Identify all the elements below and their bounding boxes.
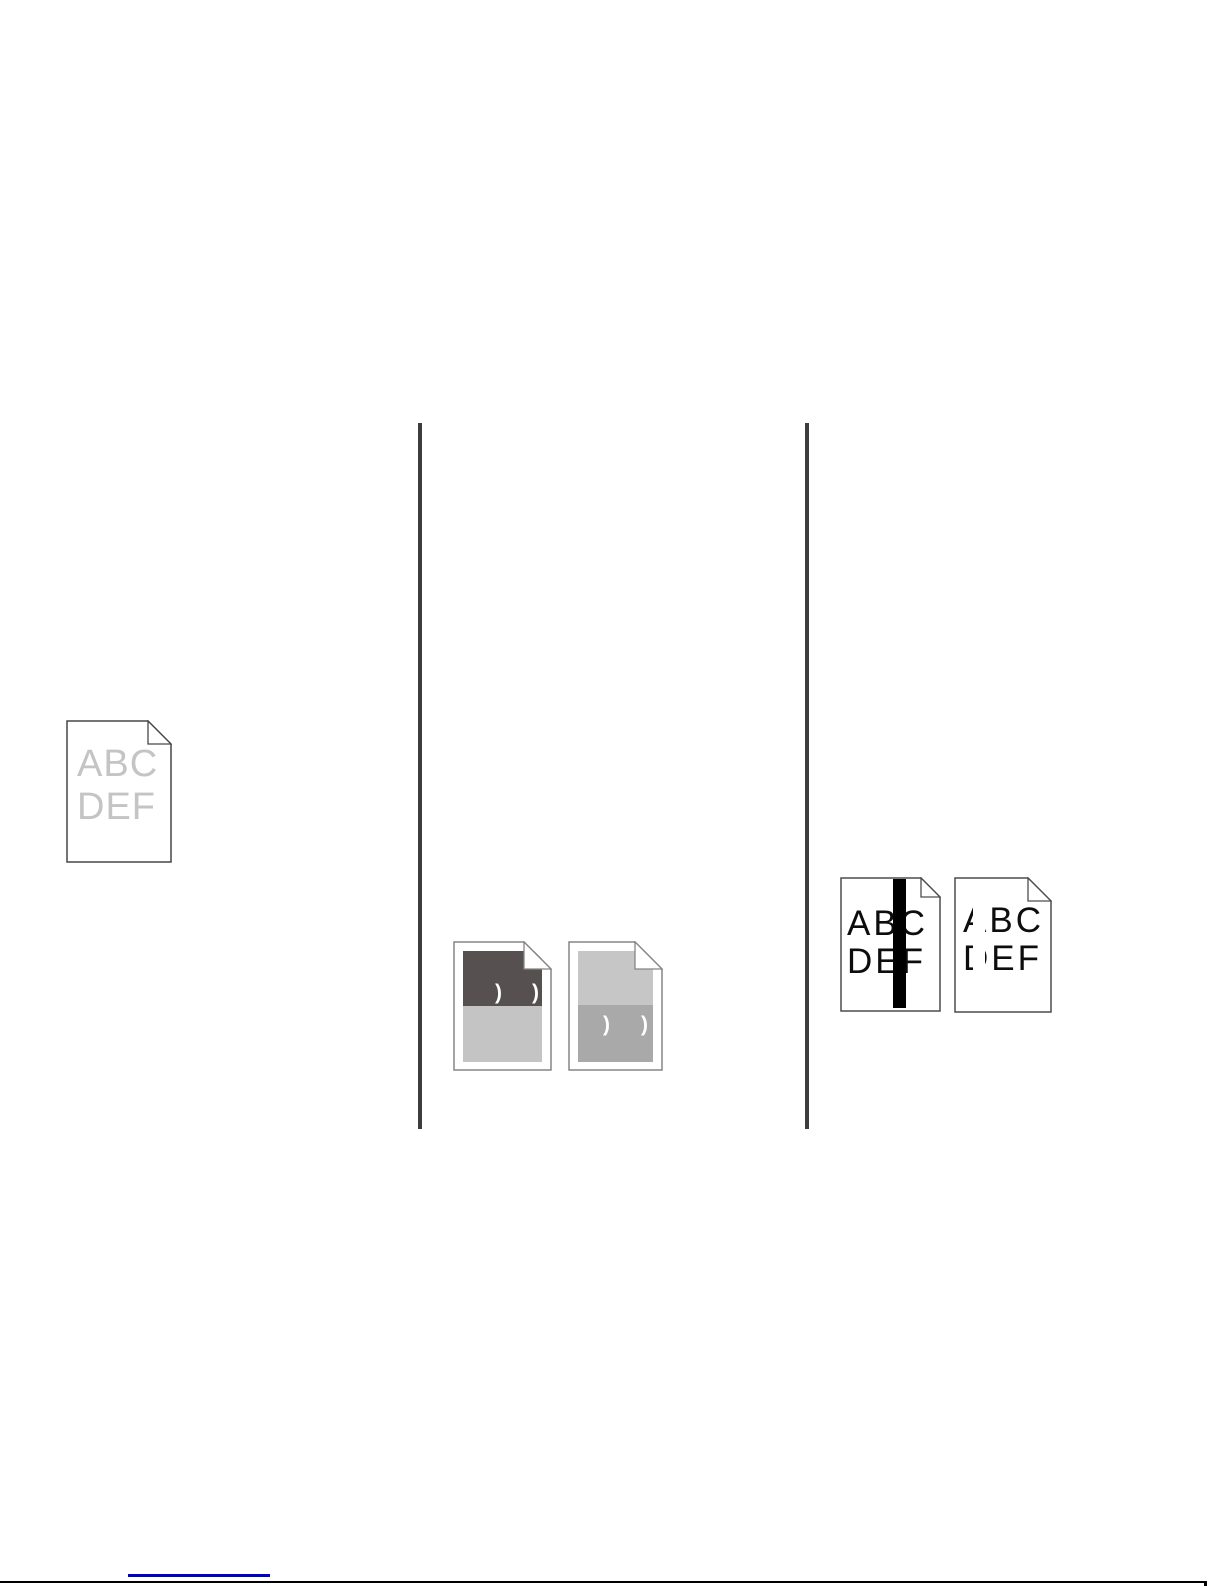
print-sample-white-streak-page: ABC DEF (954, 877, 1052, 1013)
white-streak-bar (973, 881, 985, 1006)
print-sample-gray-band-page: ) ) (568, 941, 663, 1071)
streak-mark-icon: ) (495, 982, 502, 1003)
black-streak-line-1: ABC (847, 904, 928, 943)
streak-mark-icon: ) (641, 1014, 648, 1035)
gray-band-page-content: ) ) (568, 941, 663, 1071)
print-sample-dark-band-page: ) ) (453, 941, 552, 1071)
white-streak-page-content: ABC DEF (954, 877, 1052, 1013)
footer-link-underline[interactable] (128, 1574, 270, 1577)
faded-line-1: ABC (77, 743, 158, 785)
light-band (463, 1006, 542, 1062)
faded-line-2: DEF (77, 786, 156, 828)
dark-band-page-content: ) ) (453, 941, 552, 1071)
table-column-divider-right (805, 423, 809, 1129)
page-bottom-rule-tick (1204, 1581, 1207, 1586)
black-streak-page-content: ABC DEF (840, 877, 941, 1012)
faded-page-content: ABC DEF (66, 720, 172, 863)
black-streak-line-2: DEF (847, 942, 926, 981)
table-column-divider-left (418, 423, 422, 1129)
medium-band: ) ) (578, 1005, 653, 1062)
page-bottom-rule (0, 1581, 1207, 1583)
print-sample-black-streak-page: ABC DEF (840, 877, 941, 1012)
streak-mark-icon: ) (603, 1014, 610, 1035)
print-sample-faded-page: ABC DEF (66, 720, 172, 863)
light-band (578, 951, 653, 1005)
dark-band: ) ) (463, 951, 542, 1006)
streak-mark-icon: ) (532, 982, 539, 1003)
black-streak-sample-text: ABC DEF (847, 905, 928, 981)
faded-sample-text: ABC DEF (77, 743, 158, 829)
black-streak-bar (893, 879, 906, 1008)
